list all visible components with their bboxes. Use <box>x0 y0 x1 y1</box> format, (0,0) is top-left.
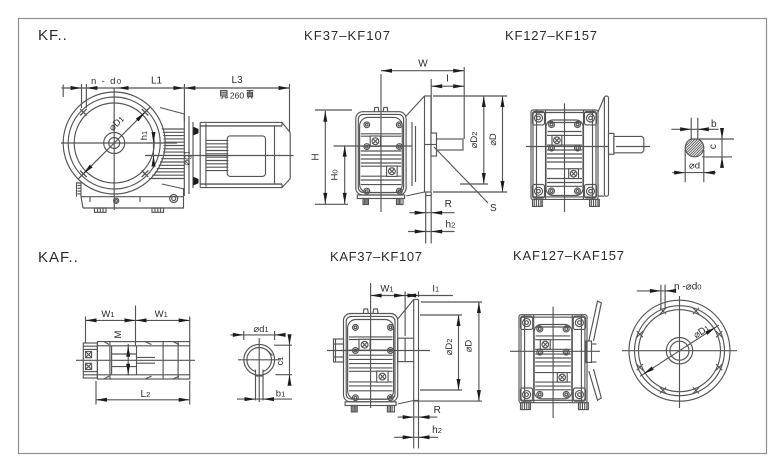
svg-text:⌀d: ⌀d <box>689 160 700 171</box>
svg-text:KF37–KF107: KF37–KF107 <box>304 28 390 43</box>
svg-text:⌀D: ⌀D <box>488 133 499 146</box>
svg-text:R: R <box>434 405 441 416</box>
svg-text:b1: b1 <box>276 389 285 400</box>
svg-text:h1: h1 <box>139 131 150 140</box>
svg-text:R: R <box>445 199 452 210</box>
svg-text:W1: W1 <box>101 309 114 320</box>
svg-text:W: W <box>418 59 428 70</box>
svg-text:KF..: KF.. <box>38 27 68 44</box>
svg-text:h2: h2 <box>446 220 456 231</box>
svg-text:260: 260 <box>230 90 244 100</box>
svg-text:W1: W1 <box>155 309 168 320</box>
svg-text:h2: h2 <box>432 425 442 436</box>
svg-text:L3: L3 <box>231 75 243 86</box>
svg-text:b: b <box>711 119 717 130</box>
svg-text:H0: H0 <box>330 169 341 180</box>
svg-text:c1: c1 <box>275 357 286 366</box>
svg-text:⌀g1: ⌀g1 <box>181 150 192 165</box>
svg-text:⌀d1: ⌀d1 <box>253 324 268 335</box>
svg-text:⌀D2: ⌀D2 <box>444 339 455 356</box>
svg-text:KAF..: KAF.. <box>38 249 79 266</box>
svg-text:M: M <box>113 330 124 338</box>
svg-text:⌀D2: ⌀D2 <box>469 132 480 149</box>
svg-text:L1: L1 <box>151 76 163 87</box>
svg-text:S: S <box>490 203 497 214</box>
svg-text:n - d0: n - d0 <box>91 76 121 87</box>
svg-text:c: c <box>708 144 719 149</box>
svg-text:⌀D: ⌀D <box>464 340 475 353</box>
svg-text:KAF37–KF107: KAF37–KF107 <box>330 249 422 264</box>
svg-text:KF127–KF157: KF127–KF157 <box>505 28 597 43</box>
svg-text:L2: L2 <box>141 389 151 400</box>
svg-text:I1: I1 <box>432 284 439 295</box>
svg-text:KAF127–KAF157: KAF127–KAF157 <box>513 248 624 263</box>
svg-text:n -⌀d0: n -⌀d0 <box>674 282 701 293</box>
svg-text:W1: W1 <box>380 284 393 295</box>
svg-text:I: I <box>446 74 449 85</box>
svg-text:H: H <box>310 153 321 160</box>
